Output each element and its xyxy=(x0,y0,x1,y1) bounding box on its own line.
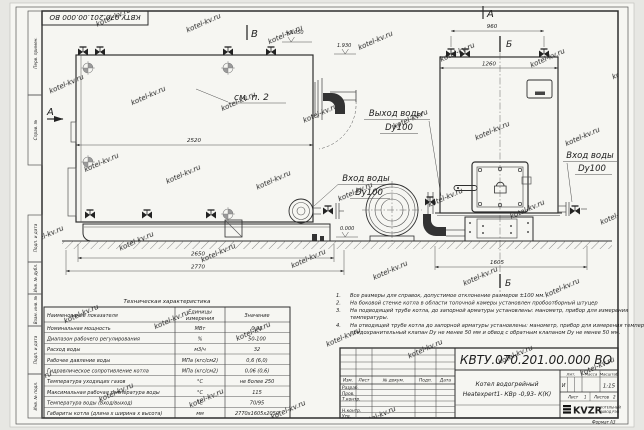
tb-col-header: Лист xyxy=(358,378,370,384)
tb-masshtab-label: Масштаб xyxy=(600,372,619,377)
boiler-drawing-svg: kotel-kv.ru kotel-kv.ru Перв. примен. Сп… xyxy=(0,0,644,430)
spec-cell: 0,06 (0,6) xyxy=(245,369,270,375)
spec-cell: Габариты котла (длина х ширина х высота) xyxy=(47,411,162,417)
company-name: ЗАВОД РЭП xyxy=(600,410,620,414)
dim-text: 2650 xyxy=(191,252,205,258)
note-text: предохранительный клапан Dу не менее 50 … xyxy=(350,330,620,336)
note-number: 3. xyxy=(336,308,341,314)
tb-lit-label: Лит. xyxy=(566,372,576,377)
tb-doc-number: КВТУ.070.201.00.000 ВО xyxy=(460,353,612,367)
tb-col-header: Подп. xyxy=(419,378,432,384)
port-label-text: Вход воды xyxy=(566,151,614,161)
elevation-text: 0.000 xyxy=(340,226,354,232)
elevation-text: +2.050 xyxy=(285,30,304,36)
margin-cell-label: Справ. № xyxy=(33,119,38,140)
tb-sheets-label: Листов xyxy=(593,395,610,400)
margin-cell-label: Перв. примен. xyxy=(33,37,38,68)
dim-text: 1260 xyxy=(482,62,496,68)
port-label-text: Выход воды xyxy=(369,109,423,119)
spec-cell: Рабочее давление воды xyxy=(47,358,110,364)
dim-text: 2770 xyxy=(191,265,205,271)
spec-cell: °С xyxy=(197,379,204,385)
spec-cell: Температура воды (вход/выход) xyxy=(47,401,133,407)
spec-cell: Температура уходящих газов xyxy=(47,379,126,385)
top-stamp: КВТУ.070.201.00.000 ВО xyxy=(42,11,148,25)
tb-lit-value: И xyxy=(562,383,566,389)
spec-cell: Максимальная рабочая температура воды xyxy=(47,390,160,396)
view-label-text: Б xyxy=(506,40,512,50)
port-label-text: Dy100 xyxy=(355,188,383,198)
spec-cell: мм xyxy=(196,411,204,417)
view-label-text: В xyxy=(251,29,258,40)
tb-row-label: Утв. xyxy=(342,413,351,419)
spec-cell: 70/95 xyxy=(250,401,264,407)
spec-cell: м3/ч xyxy=(194,347,206,353)
spec-cell: °С xyxy=(197,390,204,396)
tb-product-name: Котел водогрейный xyxy=(476,381,539,388)
see-note-text: см. п. 2 xyxy=(234,93,269,103)
spec-cell: % xyxy=(198,337,203,343)
spec-cell: 50-100 xyxy=(248,337,266,343)
stamp-doc-number: КВТУ.070.201.00.000 ВО xyxy=(49,13,140,22)
port-label-text: Dy100 xyxy=(385,123,413,133)
port-label-text: Dy100 xyxy=(578,164,606,174)
tb-sheet-label: Лист xyxy=(567,395,579,400)
spec-cell: 0,6 (6,0) xyxy=(246,358,267,364)
dim-text: 960 xyxy=(487,24,498,30)
view-label-text: Б xyxy=(505,279,511,289)
spec-cell: 32 xyxy=(254,347,260,353)
tb-col-header: Дата xyxy=(439,378,451,384)
tb-row-label: Н.контр. xyxy=(342,408,361,414)
spec-table-title: Техническая характеристика xyxy=(124,299,212,305)
dim-text: 1605 xyxy=(490,260,504,266)
spec-cell: Диапазон рабочего регулирования xyxy=(46,337,140,343)
spec-cell: 115 xyxy=(252,390,262,396)
spec-cell: МПа (кгс/см2) xyxy=(182,358,218,364)
margin-cell-label: Подп. и дата xyxy=(33,223,38,252)
note-text: Все размеры для справок, допустимое откл… xyxy=(350,293,545,299)
tb-massa-label: Масса xyxy=(585,372,598,377)
format-label: Формат xyxy=(592,420,610,425)
view-label-text: А xyxy=(46,107,54,118)
note-text: На подводящей трубе котла, до запорной а… xyxy=(350,308,628,314)
spec-header: Единицы xyxy=(188,310,212,316)
note-number: 1. xyxy=(336,293,341,299)
format-value: А3 xyxy=(609,420,616,425)
note-number: 2. xyxy=(336,301,341,307)
spec-header: Значение xyxy=(244,313,269,319)
note-text: На отводящей трубе котла до запорной арм… xyxy=(350,323,644,329)
tb-sheet-value: 1 xyxy=(584,395,587,400)
tb-col-header: № докум. xyxy=(382,378,404,384)
spec-cell: МПа (кгс/см2) xyxy=(182,369,218,375)
margin-cell-label: Инв. № дубл. xyxy=(33,264,38,293)
spec-cell: °С xyxy=(197,401,204,407)
port-label-text: Вход воды xyxy=(342,174,390,184)
margin-cell-label: Подп. и дата xyxy=(33,335,38,364)
spec-cell: Гидравлическое сопротивление котла xyxy=(47,369,149,375)
spec-cell: МВт xyxy=(195,326,207,332)
drawing-sheet: kotel-kv.ru kotel-kv.ru Перв. примен. Сп… xyxy=(0,0,644,430)
tb-row-label: Пров. xyxy=(342,391,355,397)
tb-scale-value: 1:15 xyxy=(603,384,616,390)
note-number: 4. xyxy=(336,323,341,329)
elevation-text: 1.930 xyxy=(337,43,351,49)
spec-cell: не более 250 xyxy=(240,379,275,385)
format-note: Формат А3 xyxy=(592,420,616,425)
spec-header: измерения xyxy=(186,316,215,322)
spec-cell: Номинальная мощность xyxy=(47,326,111,332)
logo-text: KVZR xyxy=(573,406,603,417)
spec-header: Наименование показателя xyxy=(47,313,118,319)
tb-row-label: Т.контр. xyxy=(342,397,361,403)
tb-row-label: Разраб. xyxy=(342,385,359,391)
tb-product-name: Heatexpert1- КВр -0,93- К(К) xyxy=(463,391,552,398)
spec-cell: 2770х1605х2050 xyxy=(235,411,279,417)
company-name: КОТЕЛЬНЫЙ xyxy=(600,405,622,410)
tb-col-header: Изм. xyxy=(343,378,353,384)
spec-cell: Расход воды xyxy=(47,347,80,353)
note-text: температуры. xyxy=(350,315,388,321)
margin-cell-label: Инв. № подл. xyxy=(33,382,38,411)
margin-cell-label: Взам. инв. № xyxy=(33,295,38,324)
dim-text: 2520 xyxy=(187,138,201,144)
spec-cell: 0,93 xyxy=(251,326,262,332)
note-text: На боковой стенке котла в области топочн… xyxy=(350,301,598,307)
ground xyxy=(62,241,612,249)
view-label-text: А xyxy=(486,9,494,20)
